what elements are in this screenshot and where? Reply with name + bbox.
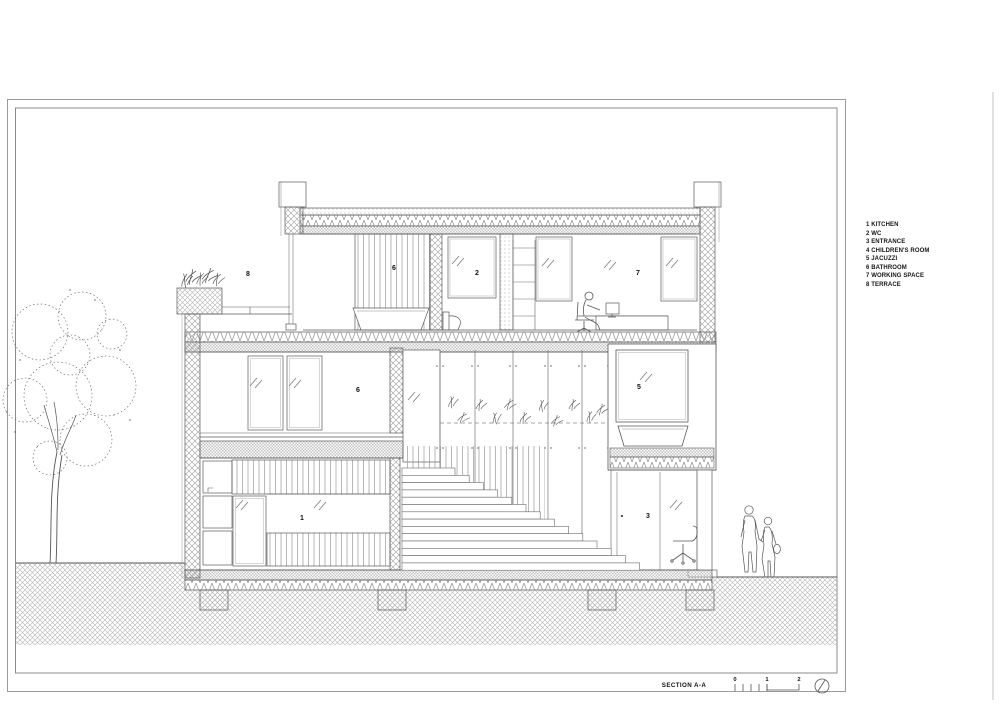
room-working-space — [536, 237, 697, 330]
monitor — [606, 303, 619, 314]
roof — [300, 190, 700, 234]
legend-item: 4 CHILDREN'S ROOM — [866, 247, 996, 256]
room-bathroom-upper — [353, 234, 430, 330]
stair-glass — [403, 350, 440, 462]
room-jacuzzi — [608, 344, 716, 470]
legend-item: 5 JACUZZI — [866, 255, 996, 264]
room-kitchen — [208, 460, 390, 566]
room-label-jacuzzi: 5 — [637, 384, 641, 391]
staircase — [402, 446, 640, 570]
title-block: SECTION A-A 0 1 2 — [662, 677, 829, 693]
room-label-kitchen: 1 — [300, 515, 304, 522]
legend-item: 8 TERRACE — [866, 281, 996, 290]
room-label-bathroom-upper: 6 — [392, 265, 396, 272]
section-title: SECTION A-A — [662, 682, 707, 689]
room-label-entrance: 3 — [646, 513, 650, 520]
legend-item: 2 WC — [866, 230, 996, 239]
wall-left — [185, 314, 200, 578]
scale-bar: 0 1 2 — [733, 677, 800, 691]
wall-kitchen-stair — [390, 458, 400, 570]
legend-item: 7 WORKING SPACE — [866, 272, 996, 281]
tree — [0, 282, 143, 563]
planter — [177, 267, 225, 314]
room-entrance — [617, 470, 712, 570]
planter-plants — [179, 267, 225, 289]
door-handle — [621, 515, 623, 517]
legend: 1 KITCHEN 2 WC 3 ENTRANCE 4 CHILDREN'S R… — [866, 221, 996, 289]
room-label-bathroom-mid: 6 — [356, 387, 360, 394]
scale-mark-2: 2 — [797, 677, 800, 683]
room-label-terrace: 8 — [246, 271, 250, 278]
shelf-ladder — [513, 240, 535, 330]
walking-couple — [741, 506, 780, 577]
section-drawing: 8 6 2 7 6 5 1 3 SECTION A-A 0 1 2 — [0, 0, 1000, 707]
room-label-wc: 2 — [475, 270, 479, 277]
wall-shelves — [203, 461, 232, 565]
office-chair — [668, 526, 700, 570]
room-bathroom-mid — [200, 356, 390, 433]
toilet — [443, 312, 461, 330]
drawing-sheet: 8 6 2 7 6 5 1 3 SECTION A-A 0 1 2 1 KITC… — [0, 0, 1000, 707]
wall-mid — [390, 348, 403, 433]
legend-item: 6 BATHROOM — [866, 264, 996, 273]
legend-item: 3 ENTRANCE — [866, 238, 996, 247]
top-floor — [185, 234, 716, 352]
room-label-working-space: 7 — [636, 270, 640, 277]
parapet-left — [279, 182, 306, 236]
room-wc — [443, 237, 496, 330]
orientation-icon — [815, 679, 829, 693]
legend-item: 1 KITCHEN — [866, 221, 996, 230]
scale-mark-1: 1 — [765, 677, 769, 683]
scale-mark-0: 0 — [733, 677, 736, 683]
